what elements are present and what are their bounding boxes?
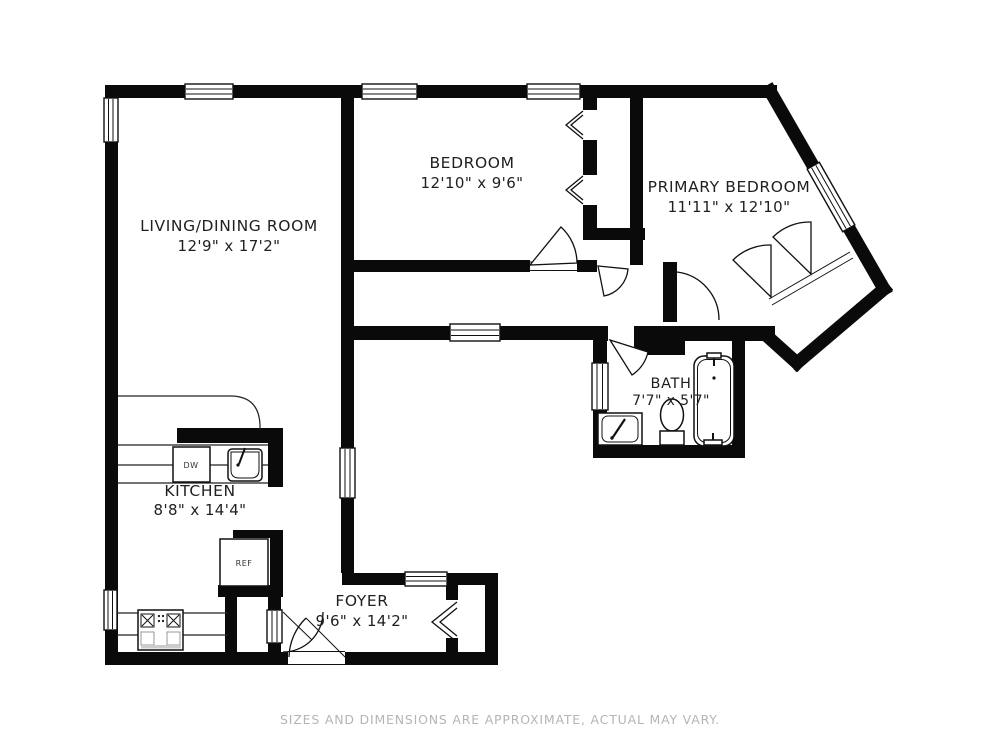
primary-door-arc	[677, 272, 719, 320]
pocket-door-bath	[592, 363, 608, 410]
openings	[267, 324, 608, 643]
bedroom-closet-bifold	[566, 111, 583, 204]
window-bedroom-left	[362, 84, 417, 99]
svg-text:9'6" x 14'2": 9'6" x 14'2"	[316, 612, 409, 630]
window-bedroom-right	[527, 84, 580, 99]
foyer-closet-bifold	[432, 602, 457, 642]
window-primary-diagonal	[807, 162, 855, 232]
svg-text:12'9" x 17'2": 12'9" x 17'2"	[178, 237, 281, 255]
window-living-left	[104, 98, 118, 142]
svg-text:PRIMARY BEDROOM: PRIMARY BEDROOM	[648, 178, 811, 196]
disclaimer-text: SIZES AND DIMENSIONS ARE APPROXIMATE, AC…	[280, 712, 720, 727]
hall-closet-door	[598, 266, 628, 296]
window-kitchen-left	[104, 590, 117, 630]
room-label-bedroom: BEDROOM 12'10" x 9'6"	[421, 154, 524, 192]
bedroom-door	[530, 227, 577, 265]
svg-text:LIVING/DINING ROOM: LIVING/DINING ROOM	[140, 217, 318, 235]
svg-text:FOYER: FOYER	[335, 592, 388, 610]
pocket-door-closet	[267, 610, 282, 643]
opening-hall	[450, 324, 500, 341]
opening-divider	[340, 448, 355, 498]
svg-text:BEDROOM: BEDROOM	[429, 154, 514, 172]
svg-text:REF: REF	[236, 559, 253, 568]
svg-text:7'7" x 5'7": 7'7" x 5'7"	[632, 393, 710, 409]
floor-plan: DW REF	[0, 0, 1000, 750]
counter-curve	[118, 396, 260, 429]
window-living-top	[185, 84, 233, 99]
room-label-kitchen: KITCHEN 8'8" x 14'4"	[154, 482, 247, 519]
primary-closet-doors	[733, 222, 853, 305]
svg-text:BATH: BATH	[651, 376, 692, 392]
bath-sink	[598, 413, 642, 445]
room-label-primary-bedroom: PRIMARY BEDROOM 11'11" x 12'10"	[648, 178, 811, 216]
floor-plan-drawing: DW REF	[0, 0, 1000, 750]
room-label-foyer: FOYER 9'6" x 14'2"	[316, 592, 409, 630]
thresholds	[288, 262, 577, 665]
svg-text:11'11" x 12'10": 11'11" x 12'10"	[668, 198, 791, 216]
dishwasher: DW	[173, 447, 210, 482]
svg-text:8'8" x 14'4": 8'8" x 14'4"	[154, 501, 247, 519]
svg-text:KITCHEN: KITCHEN	[164, 482, 235, 500]
kitchen-sink	[228, 448, 262, 481]
svg-text:DW: DW	[183, 461, 198, 470]
opening-foyer	[405, 572, 447, 586]
refrigerator: REF	[220, 539, 268, 586]
room-label-living: LIVING/DINING ROOM 12'9" x 17'2"	[140, 217, 318, 255]
stove	[138, 610, 183, 650]
svg-text:12'10" x 9'6": 12'10" x 9'6"	[421, 174, 524, 192]
